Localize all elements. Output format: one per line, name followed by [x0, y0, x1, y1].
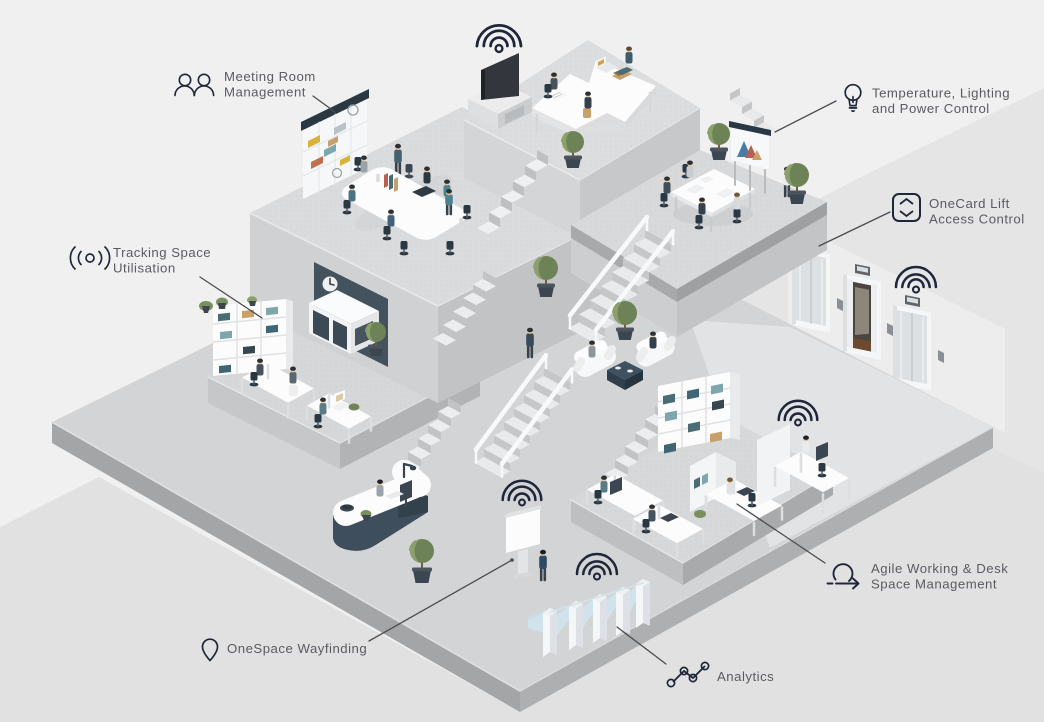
svg-text:Meeting Room: Meeting Room [224, 69, 316, 84]
svg-text:Access Control: Access Control [929, 212, 1025, 227]
svg-text:OneSpace Wayfinding: OneSpace Wayfinding [227, 641, 367, 656]
svg-text:Temperature, Lighting: Temperature, Lighting [872, 86, 1010, 101]
svg-text:and Power Control: and Power Control [872, 101, 990, 116]
svg-text:Space Management: Space Management [871, 577, 997, 592]
svg-text:Tracking Space: Tracking Space [113, 245, 211, 260]
svg-text:Analytics: Analytics [717, 669, 774, 684]
svg-text:Utilisation: Utilisation [113, 261, 176, 276]
svg-text:OneCard Lift: OneCard Lift [929, 196, 1010, 211]
svg-text:Agile Working & Desk: Agile Working & Desk [871, 561, 1008, 576]
svg-text:Management: Management [224, 85, 306, 100]
